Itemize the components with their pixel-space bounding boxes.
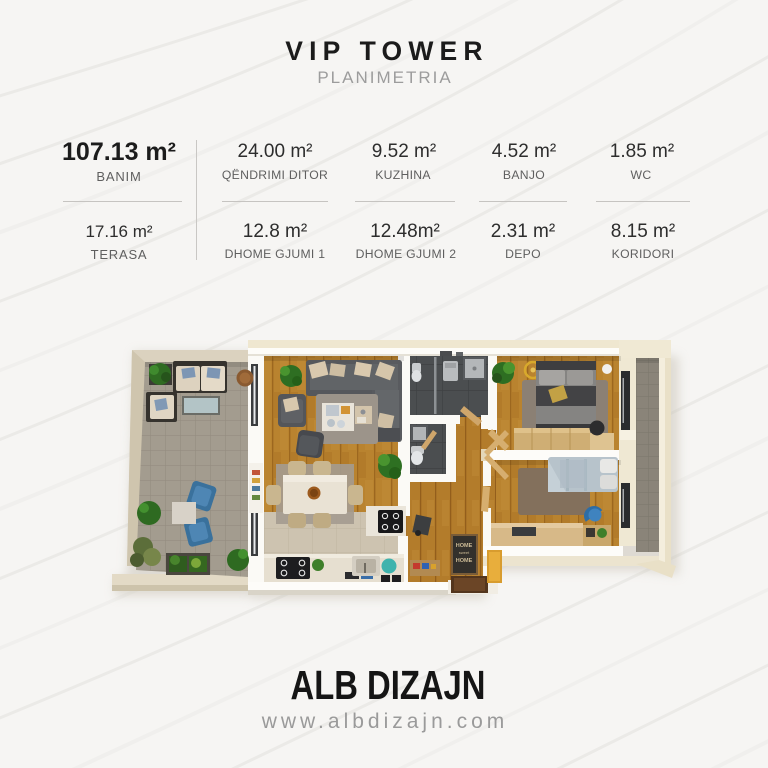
- svg-text:sweet: sweet: [459, 550, 470, 555]
- svg-text:HOME: HOME: [456, 543, 473, 549]
- svg-text:HOME: HOME: [456, 558, 473, 564]
